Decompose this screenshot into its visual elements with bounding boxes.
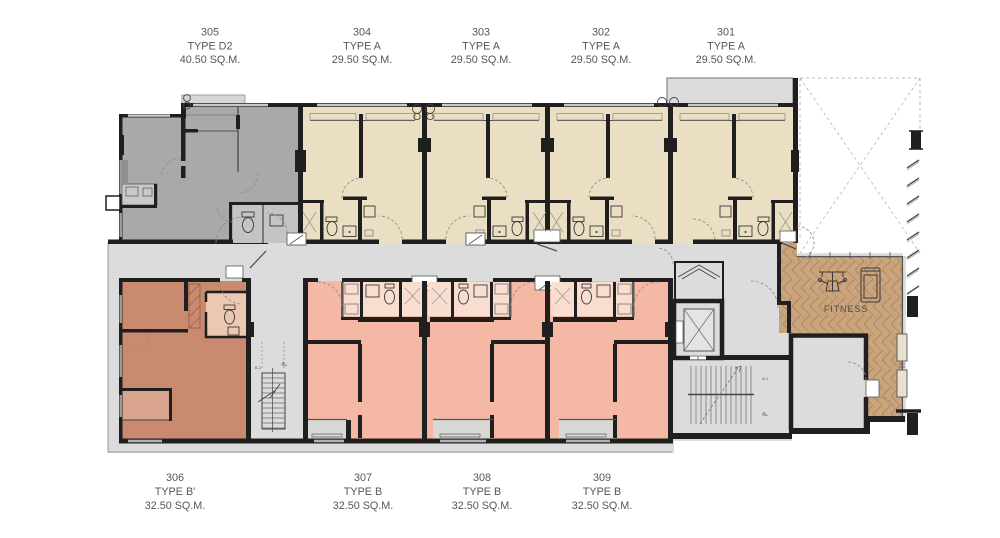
svg-text:TYPE A: TYPE A [707, 41, 746, 53]
svg-text:305: 305 [201, 27, 219, 39]
svg-text:303: 303 [472, 27, 490, 39]
svg-text:308: 308 [473, 472, 491, 484]
svg-text:TYPE A: TYPE A [582, 41, 621, 53]
svg-text:307: 307 [354, 472, 372, 484]
svg-text:301: 301 [717, 27, 735, 39]
svg-text:304: 304 [353, 27, 371, 39]
svg-text:29.50 SQ.M.: 29.50 SQ.M. [332, 54, 393, 66]
svg-text:ขึ้น: ขึ้น [762, 410, 768, 417]
svg-text:FITNESS: FITNESS [824, 304, 868, 314]
svg-text:29.50 SQ.M.: 29.50 SQ.M. [571, 54, 632, 66]
svg-text:ค-1: ค-1 [762, 376, 769, 381]
svg-text:TYPE B': TYPE B' [155, 486, 195, 498]
svg-text:309: 309 [593, 472, 611, 484]
svg-text:B-1: B-1 [255, 365, 262, 370]
svg-text:ขึ้น: ขึ้น [281, 360, 287, 367]
svg-text:32.50 SQ.M.: 32.50 SQ.M. [452, 500, 513, 512]
svg-text:29.50 SQ.M.: 29.50 SQ.M. [696, 54, 757, 66]
svg-text:32.50 SQ.M.: 32.50 SQ.M. [572, 500, 633, 512]
svg-text:40.50 SQ.M.: 40.50 SQ.M. [180, 54, 241, 66]
svg-text:302: 302 [592, 27, 610, 39]
svg-text:TYPE D2: TYPE D2 [187, 41, 232, 53]
svg-text:TYPE B: TYPE B [344, 486, 382, 498]
svg-text:TYPE B: TYPE B [463, 486, 501, 498]
svg-text:29.50 SQ.M.: 29.50 SQ.M. [451, 54, 512, 66]
svg-text:32.50 SQ.M.: 32.50 SQ.M. [333, 500, 394, 512]
svg-text:306: 306 [166, 472, 184, 484]
svg-text:32.50 SQ.M.: 32.50 SQ.M. [145, 500, 206, 512]
svg-text:TYPE B: TYPE B [583, 486, 621, 498]
svg-text:TYPE A: TYPE A [343, 41, 382, 53]
svg-text:TYPE A: TYPE A [462, 41, 501, 53]
